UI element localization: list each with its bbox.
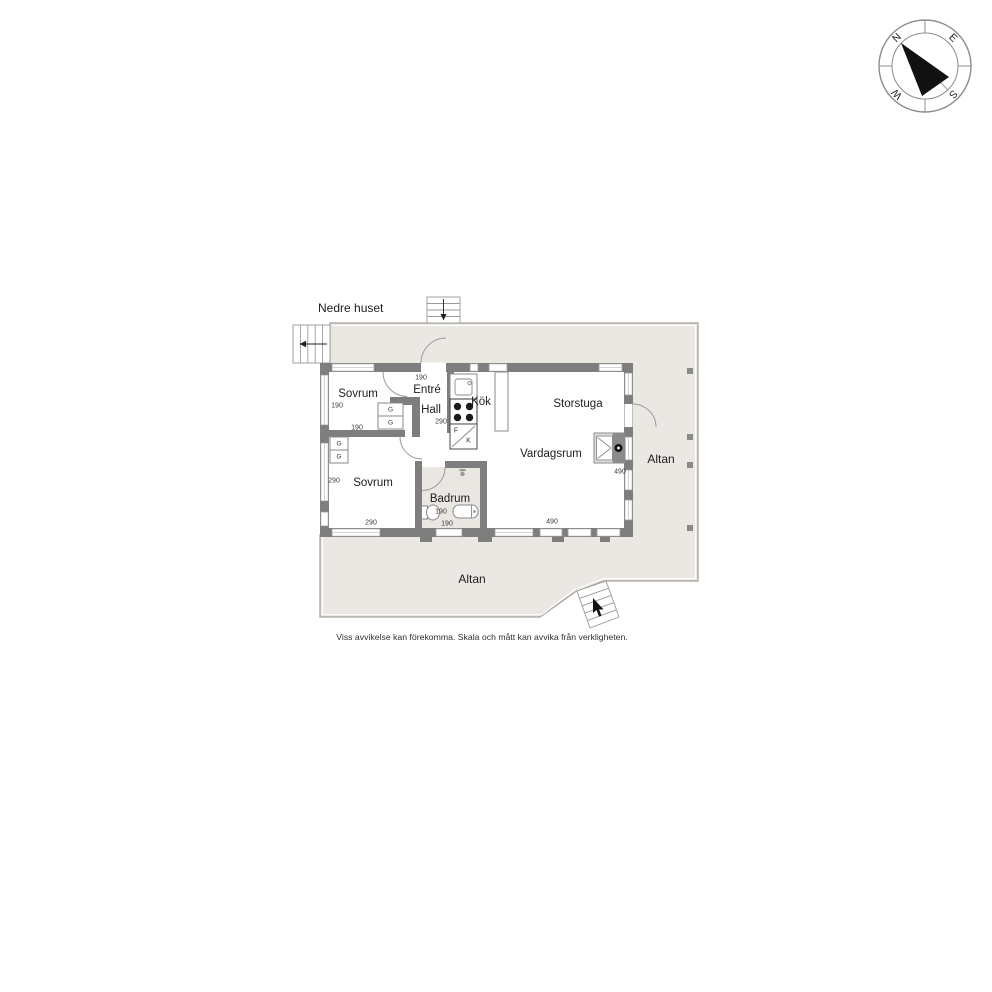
window (470, 364, 478, 371)
dim-sovrum2-height: 290 (328, 478, 340, 485)
dim-vardagsrum-width: 490 (546, 519, 558, 526)
dim-sovrum1-height: 190 (331, 403, 343, 410)
wardrobe-label: G (388, 420, 393, 427)
dim-vardagsrum-height: 490 (614, 469, 626, 476)
dim-badrum-a: 190 (435, 509, 447, 516)
flue-pipe-center (617, 447, 620, 450)
room-label-kok: Kök (471, 396, 491, 408)
dim-sovrum1-width: 190 (351, 425, 363, 432)
page-title: Nedre huset (318, 301, 384, 315)
window (436, 529, 462, 536)
railing-post (687, 462, 693, 468)
stairs-top (427, 297, 460, 323)
stairs-left (293, 325, 330, 363)
wall-bathroom-right (480, 461, 487, 537)
wardrobe-label: G (336, 454, 341, 461)
room-label-storstuga: Storstuga (553, 398, 603, 410)
floor-plan-page: N E S W Nedre huset Altan Altan (0, 0, 992, 992)
wardrobe-label: G (388, 407, 393, 414)
dim-badrum-b: 190 (441, 521, 453, 528)
window (540, 529, 562, 536)
window (321, 512, 328, 526)
room-label-entre: Entré (413, 384, 441, 396)
door-opening-entre (421, 363, 446, 373)
dim-entre-width: 190 (415, 375, 427, 382)
fridge-label: F (454, 428, 458, 435)
freezer-label: K (466, 438, 471, 445)
railing-post (687, 368, 693, 374)
bath-drain-icon (473, 510, 476, 513)
dim-hall-height: 290 (435, 419, 447, 426)
floor-plan-canvas: N E S W Nedre huset Altan Altan (0, 0, 992, 992)
fireplace-opening (597, 436, 613, 460)
wall-bathroom-left (415, 461, 422, 537)
compass-rose: N E S W (879, 20, 971, 112)
window (489, 364, 507, 371)
window (568, 529, 591, 536)
railing-post (687, 525, 693, 531)
room-label-vardagsrum: Vardagsrum (520, 448, 582, 460)
disclaimer-text: Viss avvikelse kan förekomma. Skala och … (336, 632, 628, 642)
room-label-sovrum1: Sovrum (338, 388, 378, 400)
kitchen-fixtures: F K (450, 374, 477, 449)
door-opening-deck (625, 404, 633, 427)
wardrobe-label: G (336, 441, 341, 448)
room-label-badrum: Badrum (430, 493, 470, 505)
deck-label-right: Altan (647, 452, 674, 466)
window (597, 529, 620, 536)
wall-hall (412, 397, 420, 437)
deck-label-bottom: Altan (458, 572, 485, 586)
room-label-sovrum2: Sovrum (353, 477, 393, 489)
house: G G G G F K (320, 338, 656, 542)
room-label-hall: Hall (421, 404, 441, 416)
partition-column (495, 372, 508, 431)
dim-sovrum2-width: 290 (365, 520, 377, 527)
railing-post (687, 434, 693, 440)
fireplace (594, 433, 625, 463)
